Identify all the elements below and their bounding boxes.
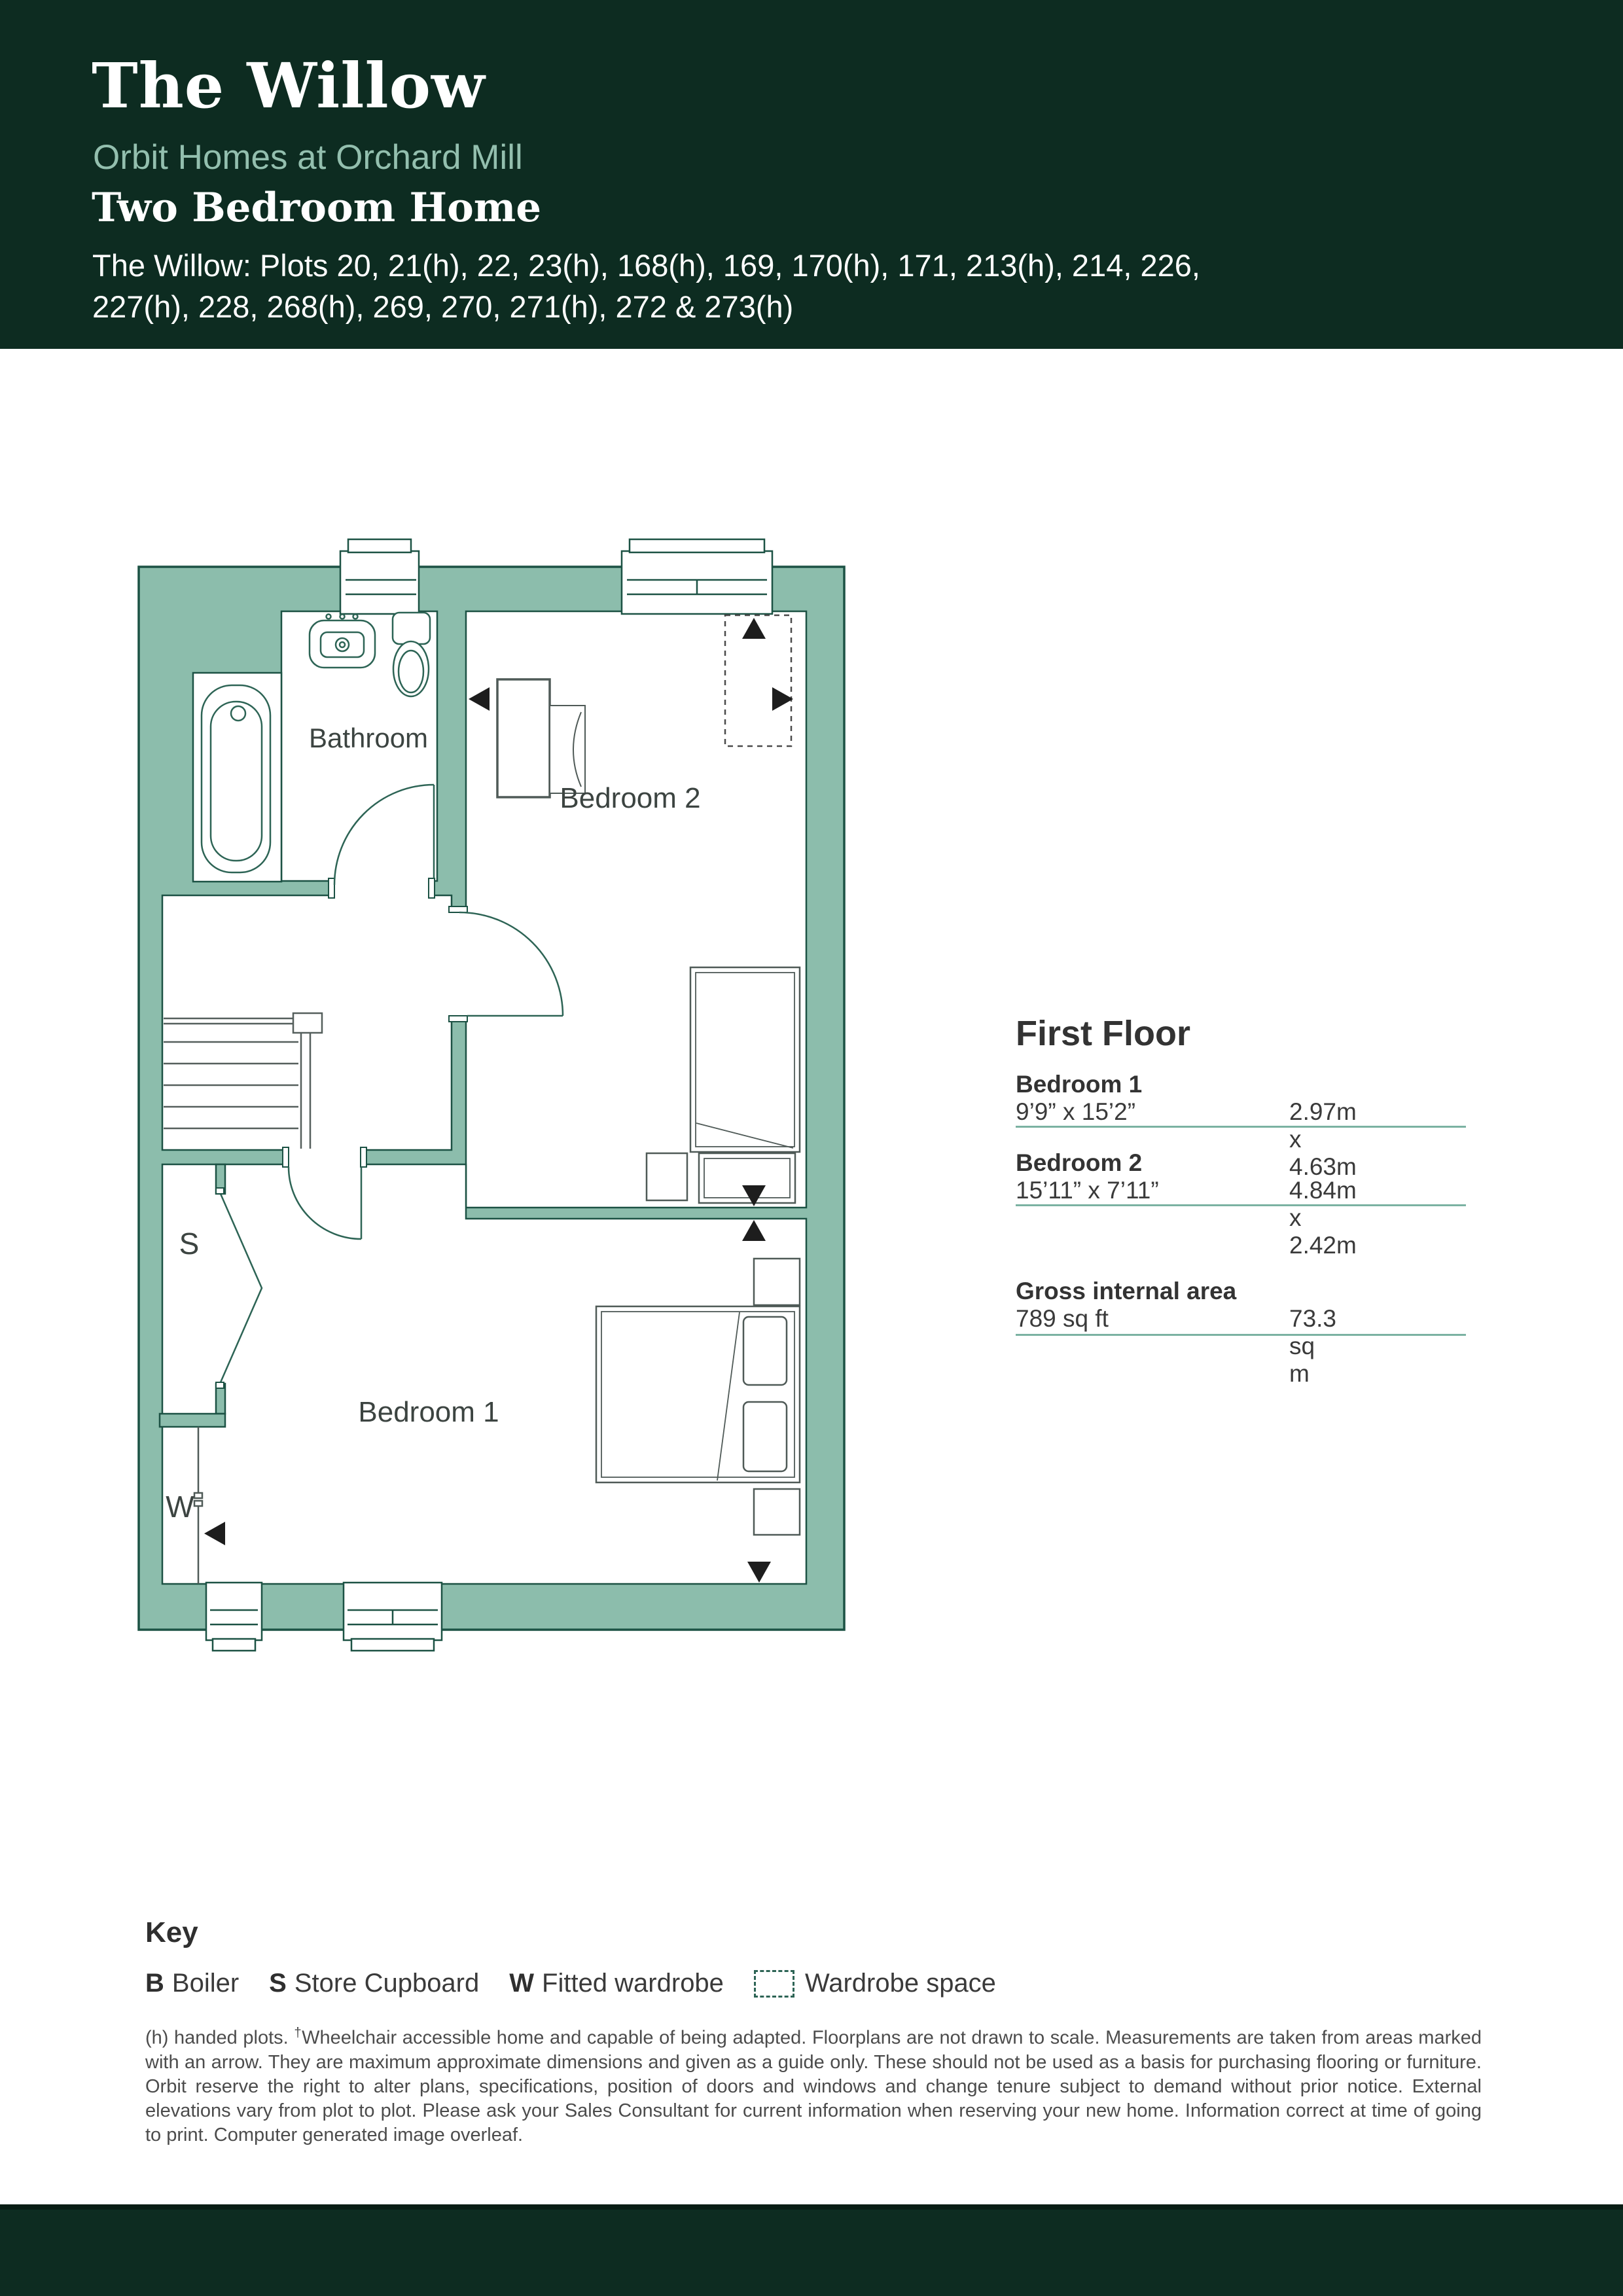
gross-area-values: 789 sq ft 73.3 sq m <box>1016 1305 1109 1333</box>
dagger-mark: † <box>294 2026 302 2040</box>
key-legend: B Boiler S Store Cupboard W Fitted wardr… <box>145 1969 996 1998</box>
window <box>340 551 419 614</box>
divider-rule <box>1016 1204 1466 1206</box>
key-item-wardrobe-space: Wardrobe space <box>754 1969 996 1998</box>
room-row-name: Bedroom 2 <box>1016 1149 1142 1177</box>
room-row-dims: 9’9” x 15’2” 2.97m x 4.63m <box>1016 1098 1135 1126</box>
single-bed-icon <box>690 967 800 1152</box>
store-label: S <box>179 1227 200 1261</box>
window-sill <box>351 1639 434 1651</box>
key-heading: Key <box>145 1916 198 1949</box>
nightstand-icon <box>754 1489 800 1535</box>
imperial-area: 789 sq ft <box>1016 1305 1109 1332</box>
window <box>206 1583 262 1640</box>
bathroom-label: Bathroom <box>309 723 428 753</box>
room-row-dims: 15’11” x 7’11” 4.84m x 2.42m <box>1016 1177 1159 1204</box>
bedroom2-label: Bedroom 2 <box>560 782 700 814</box>
room-row-name: Bedroom 1 <box>1016 1071 1142 1098</box>
stool-icon <box>550 706 585 793</box>
divider-rule <box>1016 1334 1466 1336</box>
key-item-boiler: B Boiler <box>145 1969 239 1998</box>
chest-icon <box>647 1153 687 1200</box>
toilet-cistern-icon <box>393 613 430 644</box>
dresser-icon <box>497 679 550 797</box>
pillow-icon <box>743 1317 787 1385</box>
stair-newel-post <box>293 1013 322 1033</box>
bathroom-door-jamb <box>329 878 334 898</box>
brochure-page: The Willow Orbit Homes at Orchard Mill T… <box>0 0 1623 2296</box>
imperial-dims: 15’11” x 7’11” <box>1016 1177 1159 1204</box>
metric-area: 73.3 sq m <box>1289 1305 1336 1388</box>
bedroom2-door-jamb <box>449 906 467 912</box>
nightstand-icon <box>754 1259 800 1305</box>
floor-plan: Bathroom Bedroom 2 Bedroom 1 S W <box>0 0 1623 2296</box>
metric-dims: 4.84m x 2.42m <box>1289 1177 1357 1259</box>
metric-dims: 2.97m x 4.63m <box>1289 1098 1357 1181</box>
floor-heading: First Floor <box>1016 1013 1190 1054</box>
imperial-dims: 9’9” x 15’2” <box>1016 1098 1135 1125</box>
single-bed-foot <box>699 1153 795 1203</box>
key-item-wardrobe: W Fitted wardrobe <box>509 1969 724 1998</box>
window-sill <box>348 539 411 552</box>
bedroom1-label: Bedroom 1 <box>358 1396 499 1428</box>
wardrobe-label: W <box>166 1490 194 1524</box>
pillow-icon <box>743 1402 787 1471</box>
divider-rule <box>1016 1126 1466 1128</box>
wardrobe-space-icon <box>754 1970 794 1998</box>
bath-tap-icon <box>231 706 245 721</box>
store-bottom-wall <box>160 1414 225 1427</box>
bedroom2-door-jamb <box>449 1016 467 1022</box>
bedroom1-door-jamb <box>283 1147 289 1167</box>
bedroom1-door-jamb <box>361 1147 366 1167</box>
key-item-store: S Store Cupboard <box>269 1969 479 1998</box>
footer-band <box>0 2204 1623 2296</box>
disclaimer-text: (h) handed plots. †Wheelchair accessible… <box>145 2021 1482 2147</box>
window-sill <box>630 539 764 552</box>
window-sill <box>213 1639 255 1651</box>
gross-area-label: Gross internal area <box>1016 1278 1236 1305</box>
bathroom-door-jamb <box>429 878 435 898</box>
